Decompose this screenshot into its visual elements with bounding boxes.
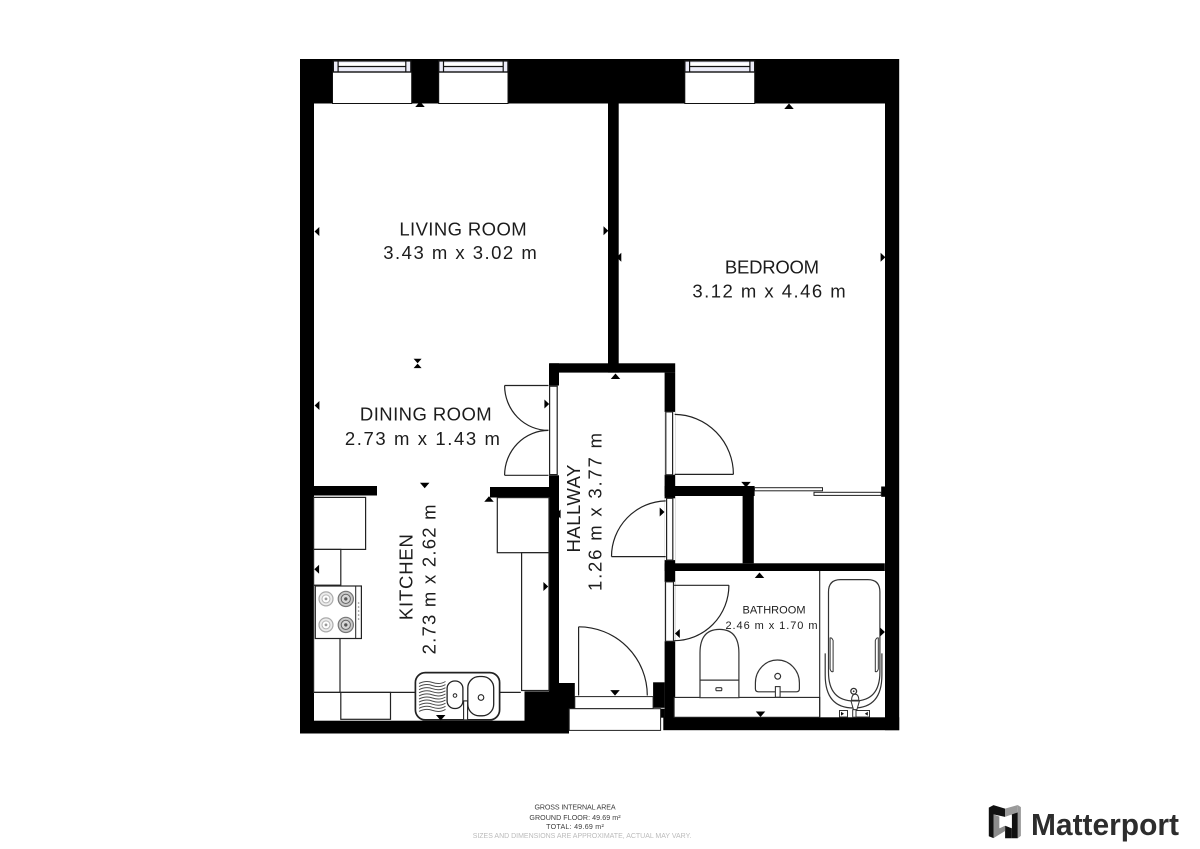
svg-text:BEDROOM: BEDROOM: [725, 257, 819, 278]
svg-text:GROSS INTERNAL AREA: GROSS INTERNAL AREA: [534, 804, 615, 812]
svg-text:3.12 m x 4.46 m: 3.12 m x 4.46 m: [692, 281, 845, 302]
svg-text:Matterport: Matterport: [1031, 807, 1179, 842]
svg-text:DINING ROOM: DINING ROOM: [360, 404, 492, 425]
svg-text:LIVING ROOM: LIVING ROOM: [399, 219, 526, 240]
svg-text:2.46 m x 1.70 m: 2.46 m x 1.70 m: [726, 620, 818, 632]
svg-text:HALLWAY: HALLWAY: [563, 465, 584, 553]
svg-text:TOTAL: 49.69 m²: TOTAL: 49.69 m²: [546, 823, 604, 831]
svg-text:BATHROOM: BATHROOM: [743, 604, 806, 616]
svg-text:GROUND FLOOR: 49.69 m²: GROUND FLOOR: 49.69 m²: [529, 814, 621, 822]
svg-text:SIZES AND DIMENSIONS ARE APPRO: SIZES AND DIMENSIONS ARE APPROXIMATE, AC…: [473, 833, 692, 840]
svg-text:2.73 m x 2.62 m: 2.73 m x 2.62 m: [419, 504, 440, 654]
svg-text:3.43 m x 3.02 m: 3.43 m x 3.02 m: [383, 242, 537, 263]
svg-text:KITCHEN: KITCHEN: [396, 534, 417, 620]
